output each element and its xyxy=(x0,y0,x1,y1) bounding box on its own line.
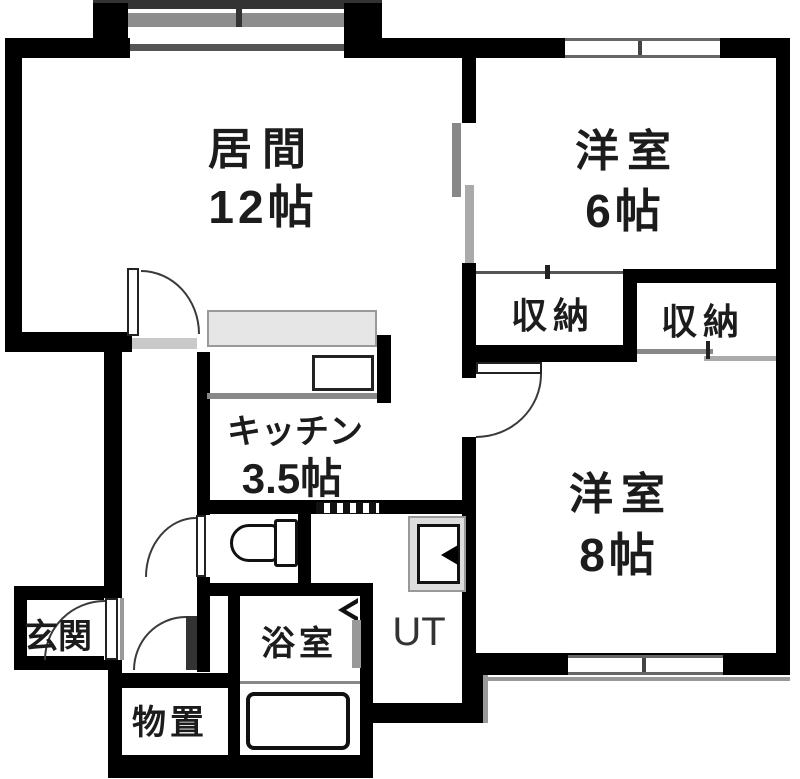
wall xyxy=(197,583,373,596)
sliding-door-panel xyxy=(452,123,461,197)
kitchen-counter-base-line xyxy=(207,393,391,399)
door-leaf xyxy=(186,616,197,670)
door-arc xyxy=(141,270,200,334)
floorplan: 居間 12帖 洋室 6帖 洋室 8帖 キッチン 3.5帖 収納 収納 UT 浴室… xyxy=(0,0,800,779)
closet-left-label: 収納 xyxy=(511,298,595,334)
window-divider xyxy=(638,41,642,55)
wall xyxy=(377,335,391,403)
bay-window-top-band xyxy=(93,0,382,9)
bay-window-sill xyxy=(105,44,367,51)
wall xyxy=(462,58,476,123)
door-leaf xyxy=(476,362,542,374)
bathtub-icon xyxy=(246,692,350,750)
kitchen-size: 3.5帖 xyxy=(242,458,342,500)
closet-right-label: 収納 xyxy=(661,304,745,340)
wall xyxy=(360,583,373,755)
wall xyxy=(108,673,240,688)
bath-door-icon-inner xyxy=(346,603,358,617)
wall xyxy=(462,345,637,362)
bath-door-track xyxy=(352,620,361,668)
wall xyxy=(623,269,790,283)
wall xyxy=(93,3,128,58)
wall xyxy=(104,332,122,600)
door-leaf xyxy=(105,598,118,660)
toilet-bowl-icon xyxy=(230,524,277,562)
window xyxy=(568,655,723,675)
living-room-size: 12帖 xyxy=(208,184,317,230)
living-room-name: 居間 xyxy=(208,128,316,172)
entrance-step-line xyxy=(120,598,124,660)
kitchen-threshold-hatch xyxy=(316,502,380,514)
door-arc xyxy=(476,374,542,438)
door-leaf xyxy=(127,268,139,336)
door-threshold xyxy=(132,338,197,349)
wall xyxy=(5,38,22,352)
window-sill-line xyxy=(483,677,790,681)
wall xyxy=(344,38,565,58)
bath-divider-line xyxy=(240,681,360,684)
western8-size: 8帖 xyxy=(579,532,659,578)
kitchen-counter xyxy=(207,310,377,347)
wall xyxy=(776,38,790,675)
kitchen-name: キッチン xyxy=(227,415,363,449)
wall xyxy=(298,500,311,596)
washer-tap-icon xyxy=(441,545,458,565)
toilet-tank-icon xyxy=(274,519,298,567)
storage-label: 物置 xyxy=(132,706,208,740)
window xyxy=(565,38,720,58)
door-gap xyxy=(462,378,476,437)
door-arc xyxy=(133,616,186,670)
kitchen-sink xyxy=(312,355,374,391)
wall xyxy=(197,352,210,672)
bath-label: 浴室 xyxy=(261,627,337,661)
window-divider xyxy=(642,658,646,672)
closet-door-tick xyxy=(545,265,550,279)
sliding-door-panel xyxy=(465,185,474,263)
wall xyxy=(108,755,373,778)
western6-name: 洋室 xyxy=(575,130,679,174)
closet-door-tick xyxy=(706,341,710,359)
bay-window-divider xyxy=(236,9,242,27)
entrance-label: 玄関 xyxy=(24,620,92,654)
door-leaf xyxy=(196,515,206,577)
utility-label: UT xyxy=(392,612,445,652)
western8-name: 洋室 xyxy=(569,473,673,517)
sliding-door-panel xyxy=(704,356,776,361)
door-arc xyxy=(145,517,196,577)
western6-size: 6帖 xyxy=(585,188,665,234)
sliding-door-panel xyxy=(637,349,713,354)
